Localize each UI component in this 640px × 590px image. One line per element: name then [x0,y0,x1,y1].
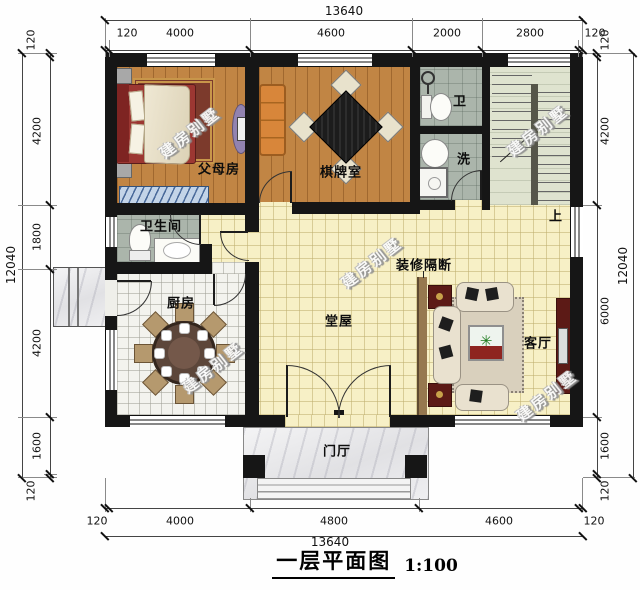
dining-table-center [168,337,200,369]
dim-line [105,50,583,51]
toilet-tank [129,250,151,261]
dim-top-total: 13640 [325,4,363,18]
wall-toilet-wash [420,126,482,134]
sofa-pillow [469,389,483,403]
washbasin [421,139,449,168]
dim-bottom-seg-3: 4600 [485,515,513,528]
window [147,53,215,67]
drawing-title-block: 一层平面图 1:100 [255,545,475,579]
side-door-opening [105,280,117,316]
tv [558,328,568,364]
plate [161,330,172,341]
bed-pillow [128,90,145,121]
sofa-pillow [465,287,479,301]
sofa-bottom [455,384,509,411]
room-label-chess: 棋牌室 [320,162,362,181]
plate [154,348,165,359]
dim-line [633,53,634,478]
dim-top-seg-4: 2800 [516,27,544,40]
dim-bottom-seg-0: 120 [87,515,108,528]
chess-sofa [259,84,286,156]
kitchen-door-opening [212,262,245,274]
wall-chess-bottom [292,202,420,214]
wardrobe [119,186,209,204]
room-label-foyer: 门厅 [323,441,351,460]
wall-bathroom-right-upper [200,203,212,215]
nightstand [116,162,132,178]
dim-bottom-seg-1: 4000 [166,515,194,528]
dim-bottom-seg-4: 120 [584,515,605,528]
window [105,217,117,247]
bed-headboard [116,84,129,162]
sofa-pillow [485,287,499,301]
bed-pillow [129,123,146,154]
dim-left-seg-3: 4200 [31,329,44,357]
porch-column [243,455,265,478]
room-label-kitchen: 厨房 [167,293,195,312]
dim-right-seg-3: 1600 [599,432,612,460]
dim-top-seg-2: 4600 [317,27,345,40]
wall-kitchen-top [105,262,212,274]
room-label-toilet: 卫 [453,91,467,110]
plant: ✳ [478,334,494,350]
window [130,415,225,427]
toilet-bowl [430,93,452,121]
dim-left-seg-1: 4200 [31,117,44,145]
wall-toilet-stairs [482,53,490,210]
dim-left-seg-2: 1800 [31,223,44,251]
dim-top-seg-3: 2000 [433,27,461,40]
dim-right-seg-1: 4200 [599,117,612,145]
dim-left-total: 12040 [4,246,18,284]
dim-right-seg-4: 120 [599,481,612,502]
room-label-hall: 堂屋 [325,311,353,330]
dim-left-seg-4: 1600 [31,432,44,460]
dim-right-seg-0: 120 [599,30,612,51]
window [508,53,570,67]
dim-bottom-seg-2: 4800 [320,515,348,528]
dim-right-total: 12040 [616,247,630,285]
wall-chess-toilet [410,53,420,210]
shower-arm [427,84,429,94]
drawing-title: 一层平面图 [272,545,395,579]
window [298,53,372,67]
plate [179,323,190,334]
dim-left-seg-0: 120 [25,30,38,51]
wall-bedroom-chess [245,53,259,232]
label-stairs-up: 上 [549,206,563,225]
window [105,330,117,390]
porch-column [405,455,427,478]
room-label-bathroom: 卫生间 [140,216,182,235]
room-label-parents: 父母房 [198,159,240,178]
room-label-wash: 洗 [457,149,471,168]
floor-plan: ✳ 父母房 棋牌室 卫 洗 [0,0,640,590]
plate [197,330,208,341]
decor-partition [417,277,427,417]
room-label-living: 客厅 [524,333,552,352]
washing-machine [418,167,448,198]
dining-chair [134,344,153,363]
foyer-steps [257,478,411,500]
vanity-basin [163,242,191,259]
dim-line [50,53,51,478]
side-porch-line [77,268,79,326]
dim-line [105,20,583,21]
side-table [428,383,452,407]
plate [161,366,172,377]
wall-wash-bottom [420,200,455,210]
window [570,207,583,257]
nightstand [116,68,132,84]
side-porch-line [68,268,70,326]
dim-line [105,508,583,509]
dim-top-seg-0: 120 [117,27,138,40]
side-porch [53,267,108,327]
shower-icon [421,71,435,85]
dim-left-seg-5: 120 [25,481,38,502]
dim-line [22,53,23,478]
label-partition: 装修隔断 [396,255,452,274]
drawing-scale: 1:100 [404,556,458,579]
dim-right-seg-2: 6000 [599,297,612,325]
dim-top-seg-1: 4000 [166,27,194,40]
